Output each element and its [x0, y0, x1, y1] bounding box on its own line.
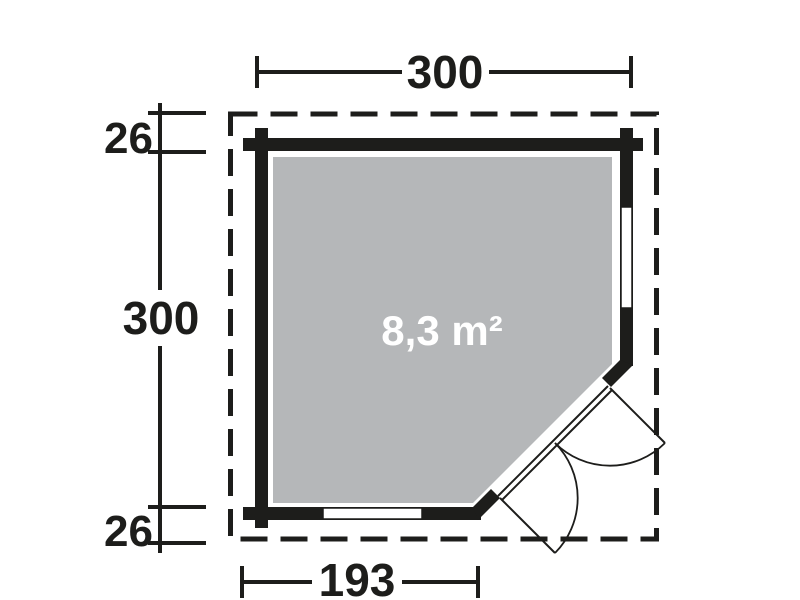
dim-label-overhang-bottom: 26 [104, 507, 153, 556]
window-right [621, 207, 632, 308]
dim-label-left-height: 300 [123, 292, 200, 344]
dim-label-bottom-width: 193 [319, 554, 396, 600]
floor-plan-page: 8,3 m² 300 300 26 26 193 [0, 0, 800, 600]
window-bottom [323, 508, 422, 519]
wall-left [255, 128, 268, 528]
wall-top [243, 138, 643, 151]
area-label: 8,3 m² [381, 307, 502, 354]
door-swing-arc-upper [555, 443, 665, 466]
dim-label-overhang-top: 26 [104, 114, 153, 163]
door-leaf-open-lower [500, 498, 555, 553]
dim-label-top-width: 300 [407, 46, 484, 98]
floor-plan-drawing: 8,3 m² 300 300 26 26 193 [0, 0, 800, 600]
